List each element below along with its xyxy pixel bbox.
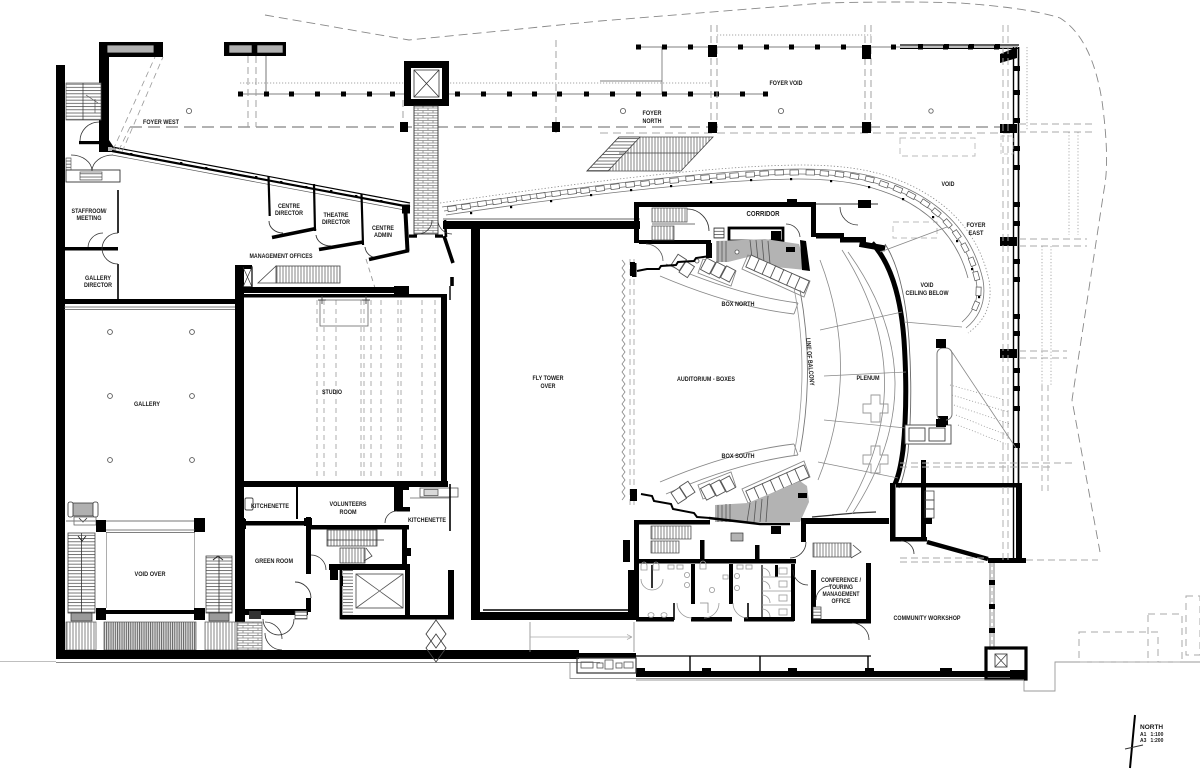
svg-text:BOX NORTH: BOX NORTH: [722, 301, 755, 308]
svg-text:ROOM: ROOM: [340, 509, 357, 516]
svg-text:STUDIO: STUDIO: [322, 389, 342, 396]
svg-text:FLY TOWER: FLY TOWER: [533, 375, 564, 382]
svg-text:FOYER: FOYER: [967, 222, 986, 229]
svg-text:NORTH: NORTH: [1140, 724, 1163, 731]
svg-text:FOYER WEST: FOYER WEST: [143, 119, 179, 126]
svg-text:VOID OVER: VOID OVER: [135, 571, 166, 578]
svg-text:AUDITORIUM - BOXES: AUDITORIUM - BOXES: [677, 376, 735, 383]
svg-text:OVER: OVER: [541, 383, 556, 390]
svg-text:GALLERY: GALLERY: [134, 401, 160, 408]
svg-text:EAST: EAST: [969, 230, 984, 237]
svg-text:CEILING BELOW: CEILING BELOW: [906, 290, 950, 297]
svg-text:VOID: VOID: [942, 181, 955, 188]
svg-text:VOLUNTEERS: VOLUNTEERS: [330, 501, 367, 508]
svg-text:MANAGEMENT: MANAGEMENT: [823, 591, 860, 598]
svg-text:FOYER VOID: FOYER VOID: [770, 80, 803, 87]
svg-text:KITCHENETTE: KITCHENETTE: [408, 517, 446, 524]
svg-text:BOX SOUTH: BOX SOUTH: [722, 453, 755, 460]
svg-text:PLENUM: PLENUM: [857, 375, 880, 382]
svg-text:DIRECTOR: DIRECTOR: [275, 210, 303, 217]
svg-text:VOID: VOID: [921, 282, 934, 289]
svg-text:GALLERY: GALLERY: [85, 275, 111, 282]
svg-text:CENTRE: CENTRE: [372, 225, 394, 232]
svg-text:COMMUNITY WORKSHOP: COMMUNITY WORKSHOP: [894, 615, 961, 622]
svg-text:OFFICE: OFFICE: [832, 598, 851, 605]
svg-text:MEETING: MEETING: [77, 215, 102, 222]
svg-text:ADMIN: ADMIN: [374, 232, 392, 239]
svg-text:STAFFROOM/: STAFFROOM/: [72, 208, 107, 215]
svg-text:CORRIDOR: CORRIDOR: [747, 209, 780, 218]
svg-text:GREEN ROOM: GREEN ROOM: [255, 558, 293, 565]
svg-text:THEATRE: THEATRE: [324, 212, 349, 219]
svg-text:A3 1:200: A3 1:200: [1140, 738, 1164, 744]
svg-text:KITCHENETTE: KITCHENETTE: [251, 503, 289, 510]
svg-text:NORTH: NORTH: [643, 118, 662, 125]
svg-text:TOURING: TOURING: [829, 584, 853, 591]
svg-text:CONFERENCE /: CONFERENCE /: [821, 577, 861, 584]
svg-text:CENTRE: CENTRE: [278, 203, 300, 210]
svg-text:DIRECTOR: DIRECTOR: [322, 219, 350, 226]
svg-text:FOYER: FOYER: [643, 110, 662, 117]
svg-text:DIRECTOR: DIRECTOR: [84, 282, 112, 289]
svg-text:MANAGEMENT OFFICES: MANAGEMENT OFFICES: [250, 253, 313, 260]
